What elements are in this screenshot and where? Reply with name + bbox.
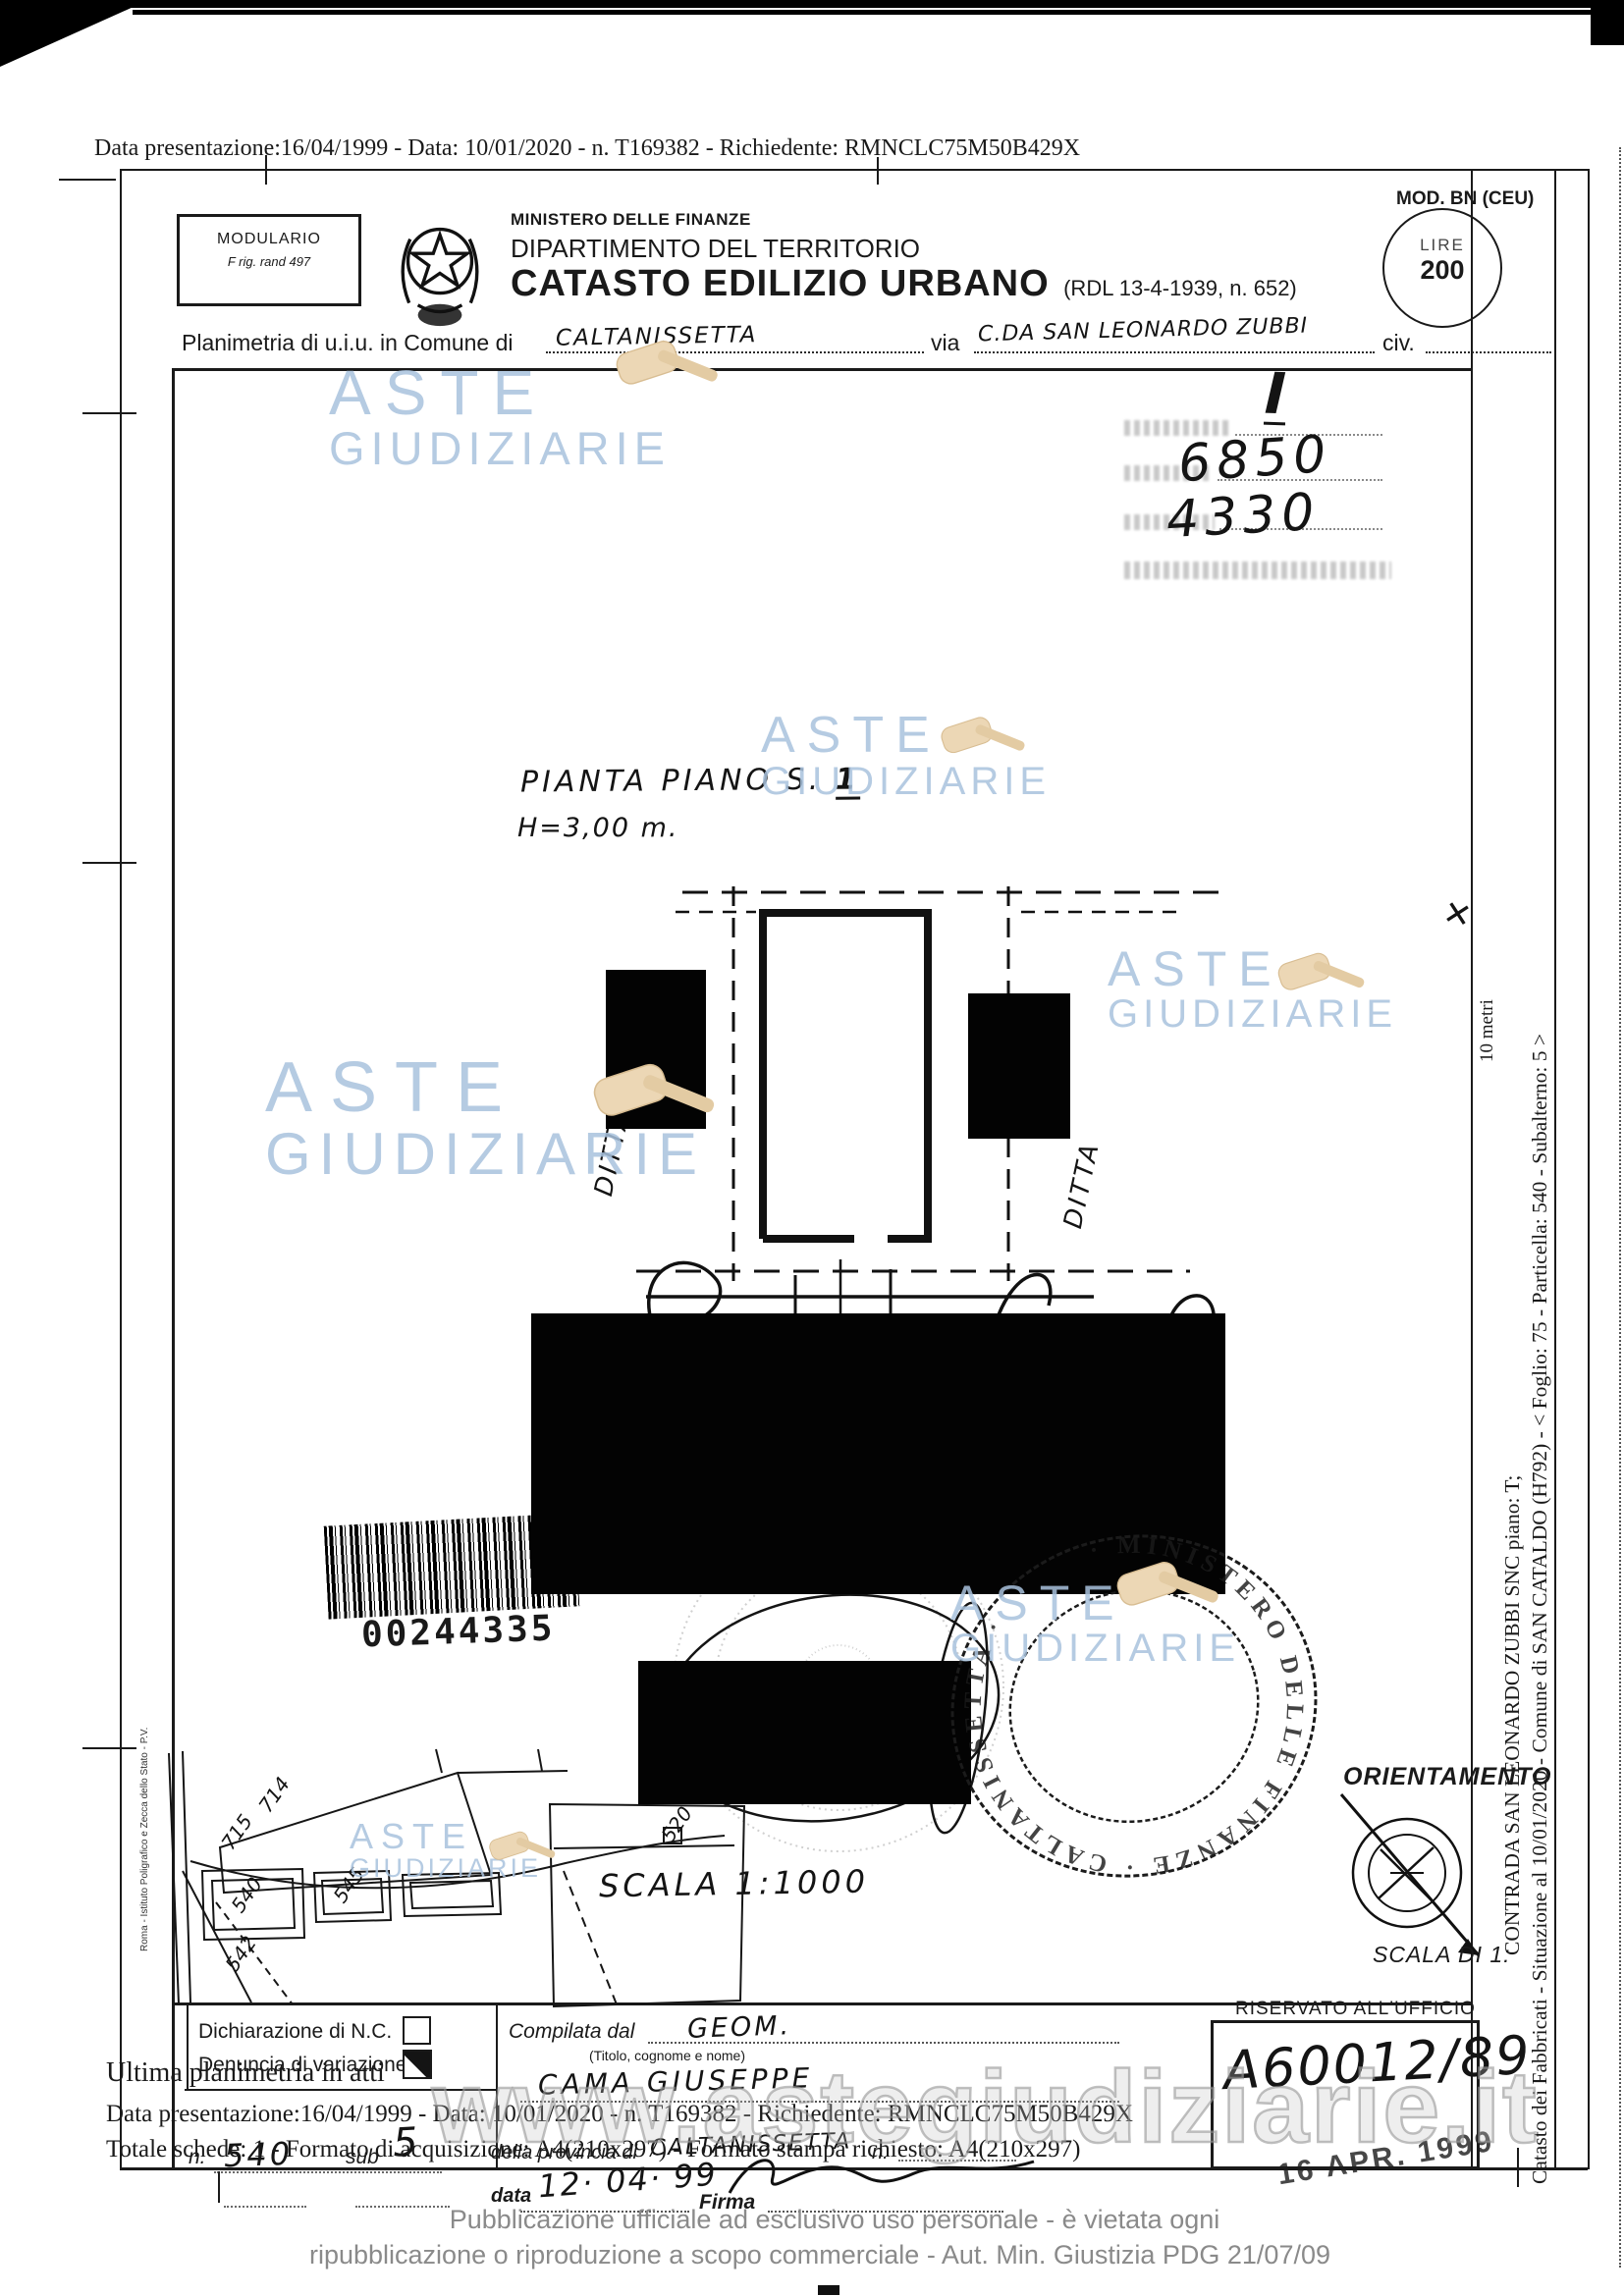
compilata-label: Compilata dal (509, 2020, 634, 2044)
printer-edge-caption: Roma - Istituto Poligrafico e Zecca dell… (139, 1728, 150, 1951)
watermark-url: www.astegiudiziarie.it (432, 2050, 1539, 2166)
scan-artifact-top-line (133, 10, 1624, 15)
gavel-icon (607, 326, 725, 404)
sheet-gutter-line (1554, 169, 1556, 2169)
sidebar-reference-line: Catasto dei Fabbricati - Situazione al 1… (1528, 1034, 1552, 2184)
overlay-top-line: Data presentazione:16/04/1999 - Data: 10… (94, 135, 1080, 162)
cross-mark: ✕ (1439, 892, 1475, 936)
parcel-label: 714 (253, 1773, 295, 1817)
n-sub-dots (214, 2171, 442, 2173)
intro-civ-label: civ. (1382, 330, 1415, 356)
gavel-icon (483, 1822, 560, 1873)
sheet-border-top (120, 169, 1588, 171)
tick-mark (82, 412, 136, 414)
decl-var-checkbox (403, 2050, 432, 2079)
tick-mark (59, 179, 116, 181)
scanned-cadastral-document: Data presentazione:16/04/1999 - Data: 10… (0, 0, 1624, 2296)
mod-bn-label: MOD. BN (CEU) (1396, 188, 1534, 210)
intro-comune-label: Planimetria di u.i.u. in Comune di (182, 330, 514, 356)
header-title-ref: (RDL 13-4-1939, n. 652) (1063, 276, 1297, 300)
modulario-box: MODULARIO F rig. rand 497 (177, 214, 361, 306)
overlay-ultima: Ultima planimetria in atti (106, 2057, 385, 2089)
lire-label: LIRE (1384, 236, 1500, 255)
gavel-icon (581, 1046, 724, 1140)
modulario-title: MODULARIO (180, 231, 358, 248)
plan-height-note: H=3,00 m. (517, 813, 679, 843)
redaction-box-stamp (638, 1661, 971, 1804)
orientation-scale-label: SCALA DI 1: (1373, 1942, 1511, 1968)
sheet-dotted-edge (1619, 147, 1621, 2268)
intro-via-label: via (931, 330, 959, 356)
sidebar-address-line: CONTRADA SAN LEONARDO ZUBBI SNC piano: T… (1500, 1475, 1525, 1955)
scan-artifact-bottom-dash (818, 2285, 839, 2295)
sheet-border-left (120, 169, 122, 2169)
tick-mark (218, 2171, 220, 2203)
gavel-icon (1108, 1547, 1225, 1626)
decl-nc-label: Dichiarazione di N.C. (198, 2020, 392, 2044)
scan-artifact-top-bar (0, 0, 1624, 8)
scan-artifact-top-right-block (1591, 0, 1624, 45)
tick-mark (82, 862, 136, 864)
intro-comune-dots (546, 351, 924, 353)
header-title: CATASTO EDILIZIO URBANO (RDL 13-4-1939, … (511, 263, 1297, 305)
modulario-sub: F rig. rand 497 (180, 254, 358, 269)
intro-via-value: C.DA SAN LEONARDO ZUBBI (978, 314, 1309, 347)
sidebar-scalebar-label: 10 metri (1477, 999, 1498, 1062)
intro-via-dots (974, 351, 1375, 353)
compilata-value: GEOM. (686, 2010, 791, 2045)
gavel-icon (933, 705, 1031, 770)
gavel-icon (1269, 940, 1372, 1007)
watermark-word: GIUDIZIARIE (329, 425, 671, 472)
header-ministry: MINISTERO DELLE FINANZE (511, 210, 751, 230)
faint-label-row4 (1124, 561, 1391, 579)
lire-value: 200 (1384, 255, 1500, 286)
header-department: DIPARTIMENTO DEL TERRITORIO (511, 234, 920, 264)
ref-value-4330: 4330 (1165, 483, 1322, 550)
watermark-word: GIUDIZIARIE (950, 1629, 1240, 1669)
redaction-box-right (968, 993, 1070, 1139)
sheet-border-right (1588, 169, 1590, 2169)
riservato-label: RISERVATO ALL'UFFICIO (1235, 1999, 1476, 2020)
footer-line1: Pubblicazione ufficiale ad esclusivo uso… (0, 2205, 1624, 2235)
intro-civ-dots (1426, 351, 1551, 353)
header-title-main: CATASTO EDILIZIO URBANO (511, 263, 1050, 304)
footer-line2: ripubblicazione o riproduzione a scopo c… (0, 2240, 1624, 2270)
italy-emblem-icon (385, 208, 495, 332)
barcode-number: 00244335 (360, 1609, 556, 1656)
lire-stamp-circle: LIRE 200 (1382, 208, 1502, 328)
scan-artifact-corner-wedge (0, 6, 135, 67)
decl-nc-checkbox (403, 2016, 431, 2045)
ref-roman-value: I (1264, 365, 1287, 426)
